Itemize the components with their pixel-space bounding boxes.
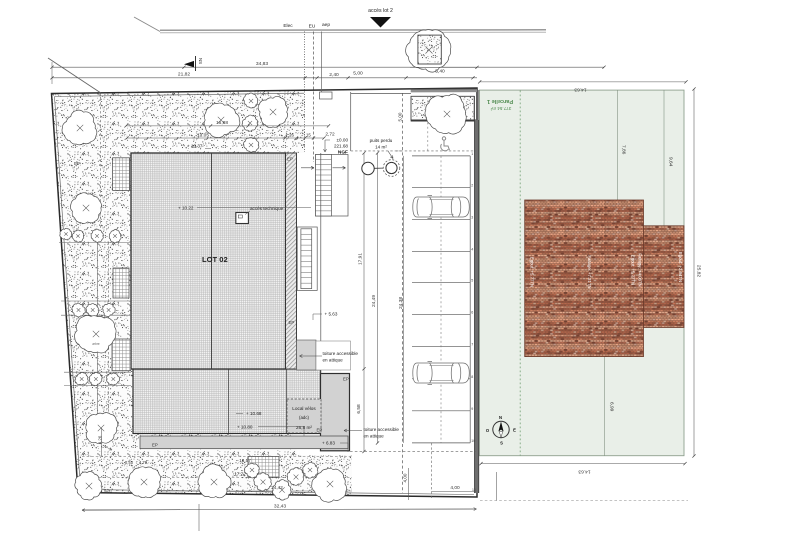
svg-text:4,00: 4,00	[450, 485, 460, 491]
svg-text:221.68: 221.68	[334, 144, 348, 149]
svg-text:EP: EP	[74, 161, 80, 166]
svg-text:Egout: +5.77TN: Egout: +5.77TN	[530, 257, 535, 287]
svg-text:32,43: 32,43	[274, 504, 287, 510]
svg-text:7: 7	[471, 343, 473, 347]
svg-text:+ 10.68: + 10.68	[246, 411, 262, 416]
svg-text:3: 3	[471, 215, 473, 219]
svg-text:34,83: 34,83	[256, 61, 269, 67]
svg-text:1: 1	[471, 152, 473, 156]
svg-text:16,57: 16,57	[239, 458, 251, 463]
svg-text:+ 10.22: + 10.22	[178, 206, 194, 211]
svg-text:Faitage: +7.21TN: Faitage: +7.21TN	[587, 255, 592, 288]
svg-text:7,86: 7,86	[621, 145, 627, 155]
svg-text:24,42: 24,42	[271, 485, 283, 490]
svg-text:+ 10.80: + 10.80	[237, 425, 253, 430]
svg-text:6,58: 6,58	[356, 404, 362, 414]
svg-text:±0.00: ±0.00	[337, 138, 349, 143]
svg-text:NGF: NGF	[338, 150, 348, 156]
svg-text:accès lot 2: accès lot 2	[368, 8, 393, 14]
svg-text:10: 10	[471, 439, 475, 443]
svg-text:17,91: 17,91	[358, 253, 364, 265]
svg-text:21,82: 21,82	[178, 72, 191, 78]
svg-text:13.05: 13.05	[197, 132, 209, 138]
svg-text:1,26: 1,26	[285, 132, 294, 137]
svg-text:4,70: 4,70	[139, 460, 148, 465]
svg-text:15: 15	[306, 132, 311, 137]
svg-text:+ 5.63: + 5.63	[325, 312, 338, 317]
svg-text:6,99: 6,99	[609, 402, 615, 412]
svg-text:14 m²: 14 m²	[375, 145, 387, 150]
svg-text:9,01: 9,01	[104, 488, 113, 494]
svg-text:2: 2	[471, 183, 473, 187]
svg-text:Egout: +2.94TN: Egout: +2.94TN	[678, 252, 683, 282]
svg-text:puits perdu: puits perdu	[370, 138, 393, 143]
svg-text:24,38: 24,38	[398, 297, 404, 309]
svg-text:EP: EP	[343, 377, 349, 382]
svg-text:S: S	[500, 441, 503, 446]
svg-text:toiture accessible: toiture accessible	[364, 427, 400, 432]
svg-text:2,72: 2,72	[325, 131, 335, 137]
svg-text:0,40: 0,40	[125, 460, 134, 465]
svg-text:5,00: 5,00	[353, 71, 363, 77]
svg-text:4,00: 4,00	[403, 473, 408, 482]
svg-text:E: E	[513, 428, 516, 433]
svg-text:24,49: 24,49	[371, 295, 377, 307]
svg-text:+ 6.83: + 6.83	[322, 441, 335, 446]
svg-text:EP: EP	[152, 443, 158, 448]
svg-text:EP: EP	[289, 320, 295, 325]
svg-text:en attique: en attique	[323, 358, 344, 363]
svg-text:Egout: +5.77TN: Egout: +5.77TN	[631, 255, 636, 285]
svg-text:accès technique: accès technique	[250, 206, 284, 211]
svg-text:N: N	[499, 415, 502, 420]
svg-text:EU: EU	[309, 24, 316, 30]
svg-text:4: 4	[471, 247, 473, 251]
svg-text:Faitage: +4.08TN: Faitage: +4.08TN	[638, 253, 643, 286]
svg-text:+ 10.37: + 10.37	[187, 144, 203, 149]
svg-text:9,64: 9,64	[668, 157, 674, 167]
svg-text:5: 5	[471, 279, 473, 283]
svg-text:10: 10	[472, 488, 476, 492]
svg-text:8: 8	[471, 375, 473, 379]
svg-text:14.63: 14.63	[574, 87, 587, 93]
svg-text:6: 6	[471, 311, 473, 315]
svg-text:EP: EP	[287, 157, 293, 162]
svg-text:16,88: 16,88	[216, 120, 228, 126]
svg-text:EP: EP	[317, 428, 323, 433]
svg-text:14.63: 14.63	[578, 469, 591, 475]
svg-text:2,40: 2,40	[329, 72, 339, 78]
svg-text:17,72: 17,72	[234, 472, 246, 477]
svg-text:Local vélos: Local vélos	[292, 406, 316, 411]
svg-text:(adc): (adc)	[299, 415, 310, 420]
svg-text:Elec: Elec	[283, 23, 293, 29]
svg-text:NS: NS	[198, 58, 203, 64]
svg-text:5,40: 5,40	[435, 69, 445, 75]
svg-text:9: 9	[471, 407, 473, 411]
svg-text:arbre: arbre	[92, 342, 100, 346]
svg-text:toiture accessible: toiture accessible	[323, 351, 359, 356]
svg-text:377.54 m²: 377.54 m²	[490, 106, 511, 111]
svg-text:25,82: 25,82	[696, 265, 702, 278]
svg-text:5,00: 5,00	[398, 112, 403, 121]
svg-text:aep: aep	[322, 23, 330, 28]
svg-text:Parcelle 1: Parcelle 1	[487, 98, 513, 104]
svg-text:en attique: en attique	[364, 434, 385, 439]
svg-text:LOT 02: LOT 02	[202, 255, 228, 264]
